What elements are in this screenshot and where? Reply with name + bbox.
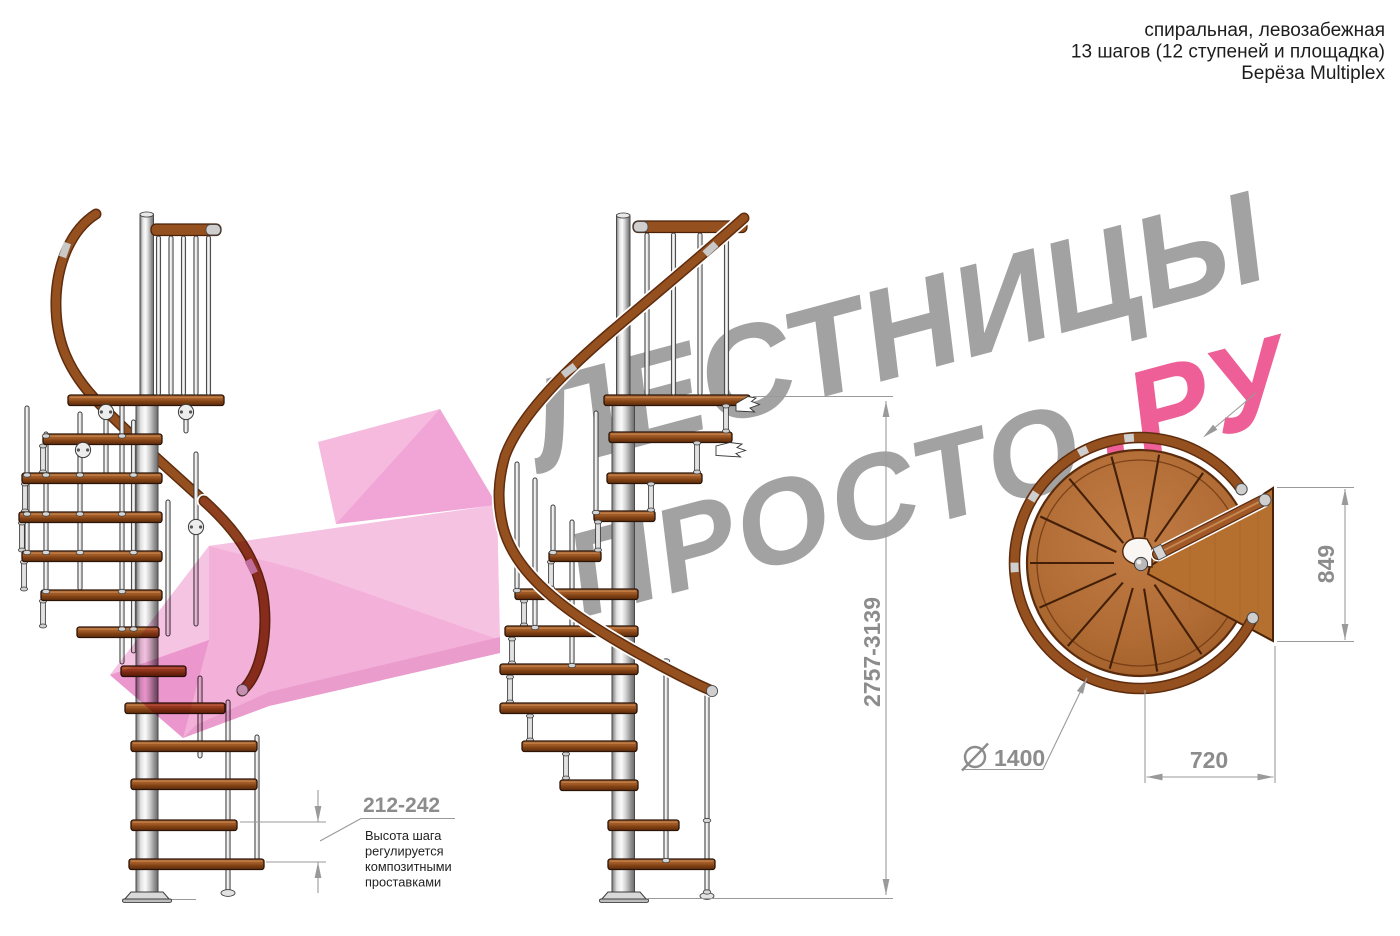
svg-text:1400: 1400	[994, 745, 1045, 771]
svg-text:212-242: 212-242	[363, 794, 440, 817]
svg-text:2757-3139: 2757-3139	[859, 597, 885, 707]
svg-text:13 шагов (12 ступеней и площад: 13 шагов (12 ступеней и площадка)	[1071, 42, 1385, 63]
svg-text:849: 849	[1313, 545, 1339, 583]
svg-text:720: 720	[1190, 747, 1228, 773]
svg-text:Высота шагарегулируетсякомпози: Высота шагарегулируетсякомпозитнымипрост…	[365, 828, 452, 890]
svg-text:спиральная, левозабежная: спиральная, левозабежная	[1144, 20, 1385, 41]
svg-text:Берёза Multiplex: Берёза Multiplex	[1241, 63, 1385, 84]
